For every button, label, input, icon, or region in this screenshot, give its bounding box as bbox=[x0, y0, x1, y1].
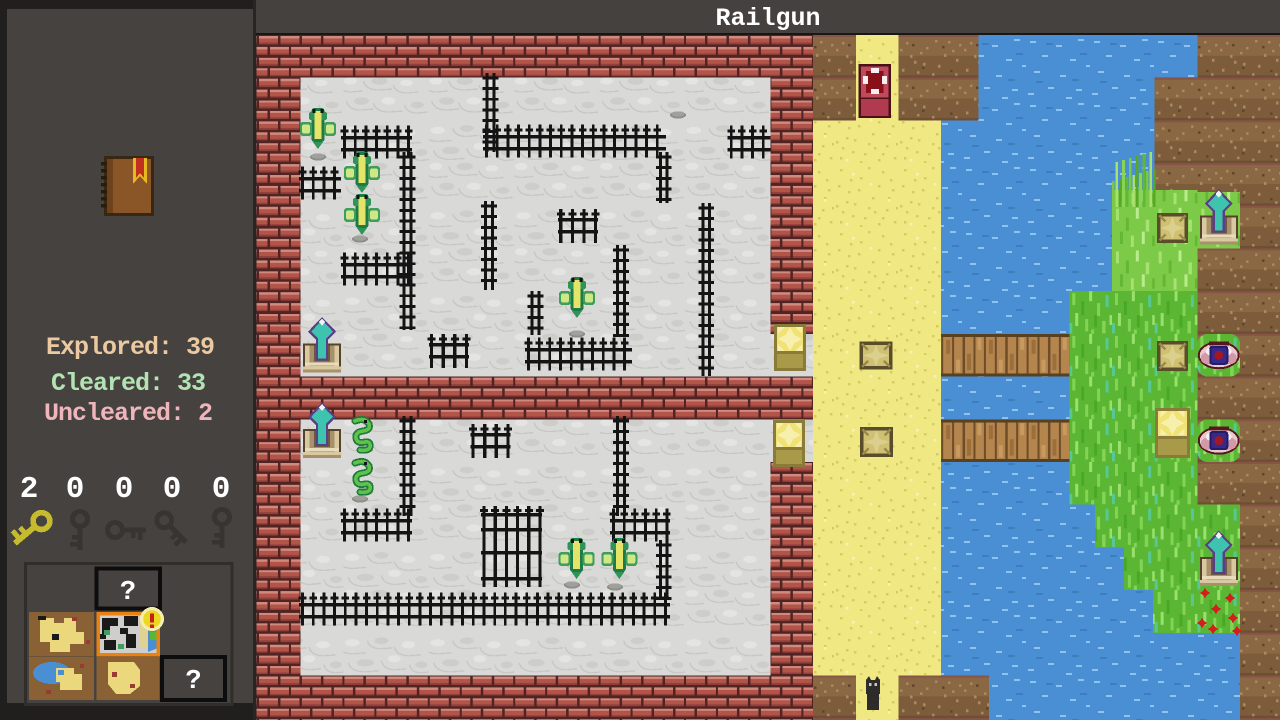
svg-text:Explored: 39: Explored: 39 bbox=[46, 333, 214, 362]
svg-text:?: ? bbox=[185, 667, 201, 697]
svg-text:0: 0 bbox=[212, 472, 231, 507]
svg-text:0: 0 bbox=[163, 472, 182, 507]
svg-text:Railgun: Railgun bbox=[715, 4, 820, 33]
svg-text:Uncleared: 2: Uncleared: 2 bbox=[44, 399, 212, 428]
svg-text:0: 0 bbox=[66, 472, 85, 507]
svg-text:0: 0 bbox=[115, 472, 134, 507]
svg-text:?: ? bbox=[120, 578, 136, 608]
svg-text:Cleared: 33: Cleared: 33 bbox=[51, 369, 205, 398]
svg-text:2: 2 bbox=[20, 472, 39, 507]
